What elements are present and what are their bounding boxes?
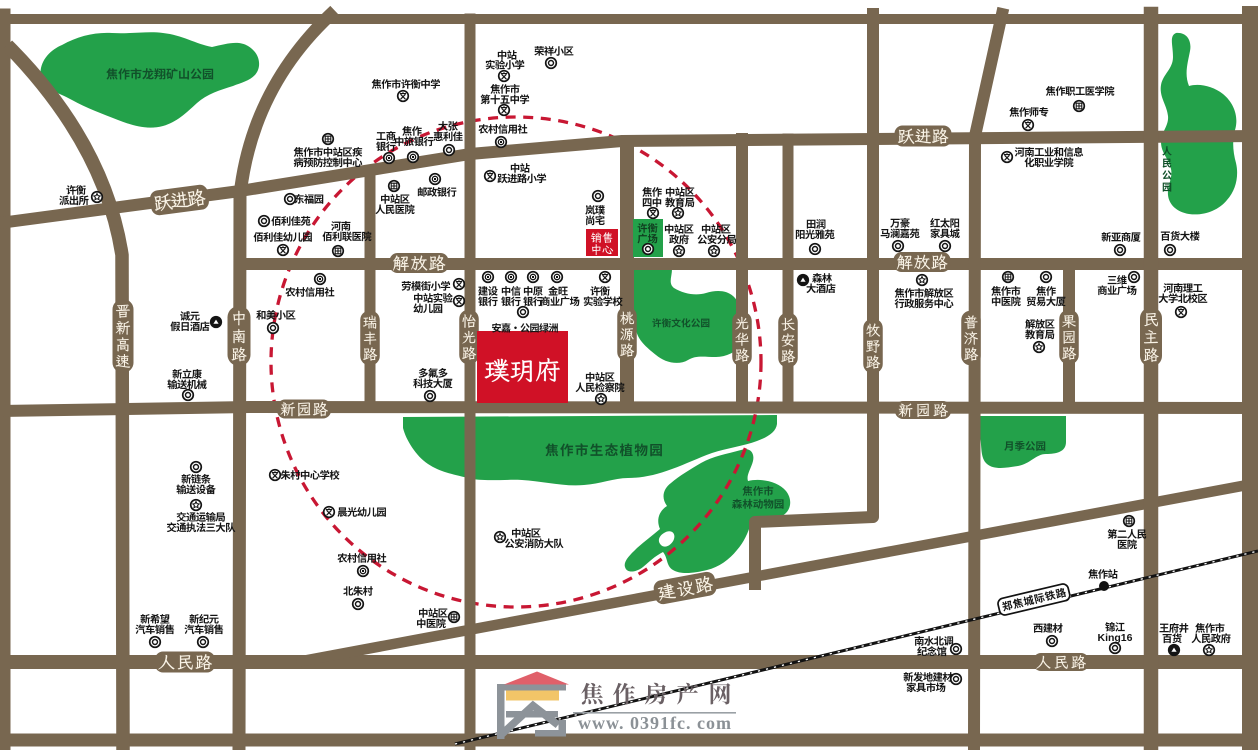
svg-text:www. 0391fc. com: www. 0391fc. com xyxy=(578,713,732,733)
svg-text:King16: King16 xyxy=(1097,632,1132,644)
